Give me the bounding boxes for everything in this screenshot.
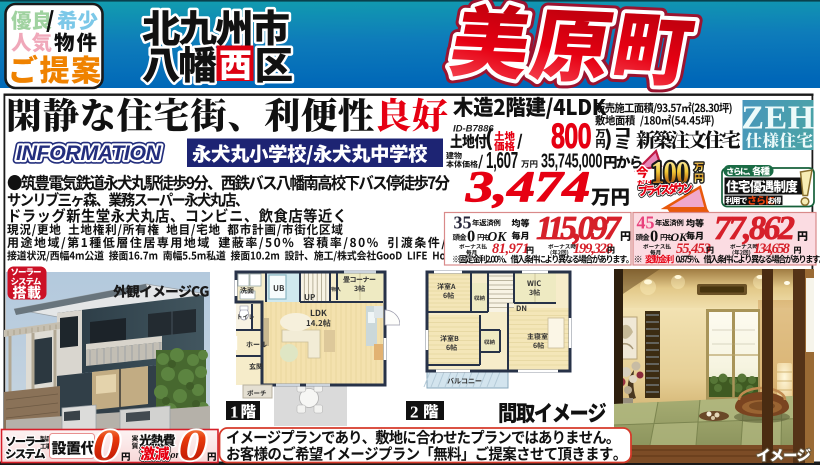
svg-text:0: 0	[650, 227, 658, 246]
svg-text:0: 0	[467, 227, 475, 246]
svg-text:134,658: 134,658	[754, 241, 791, 257]
svg-text:INFORMATION: INFORMATION	[16, 141, 162, 165]
svg-text:81,971: 81,971	[492, 241, 529, 257]
svg-text:ZEH: ZEH	[741, 100, 814, 137]
svg-text:199,328: 199,328	[573, 241, 614, 257]
svg-text:3,474: 3,474	[465, 164, 590, 211]
svg-text:2: 2	[410, 403, 419, 422]
svg-text:1: 1	[230, 403, 239, 422]
svg-text:0: 0	[179, 421, 207, 466]
svg-text:0: 0	[93, 421, 121, 466]
svg-text:55,453: 55,453	[676, 241, 711, 257]
